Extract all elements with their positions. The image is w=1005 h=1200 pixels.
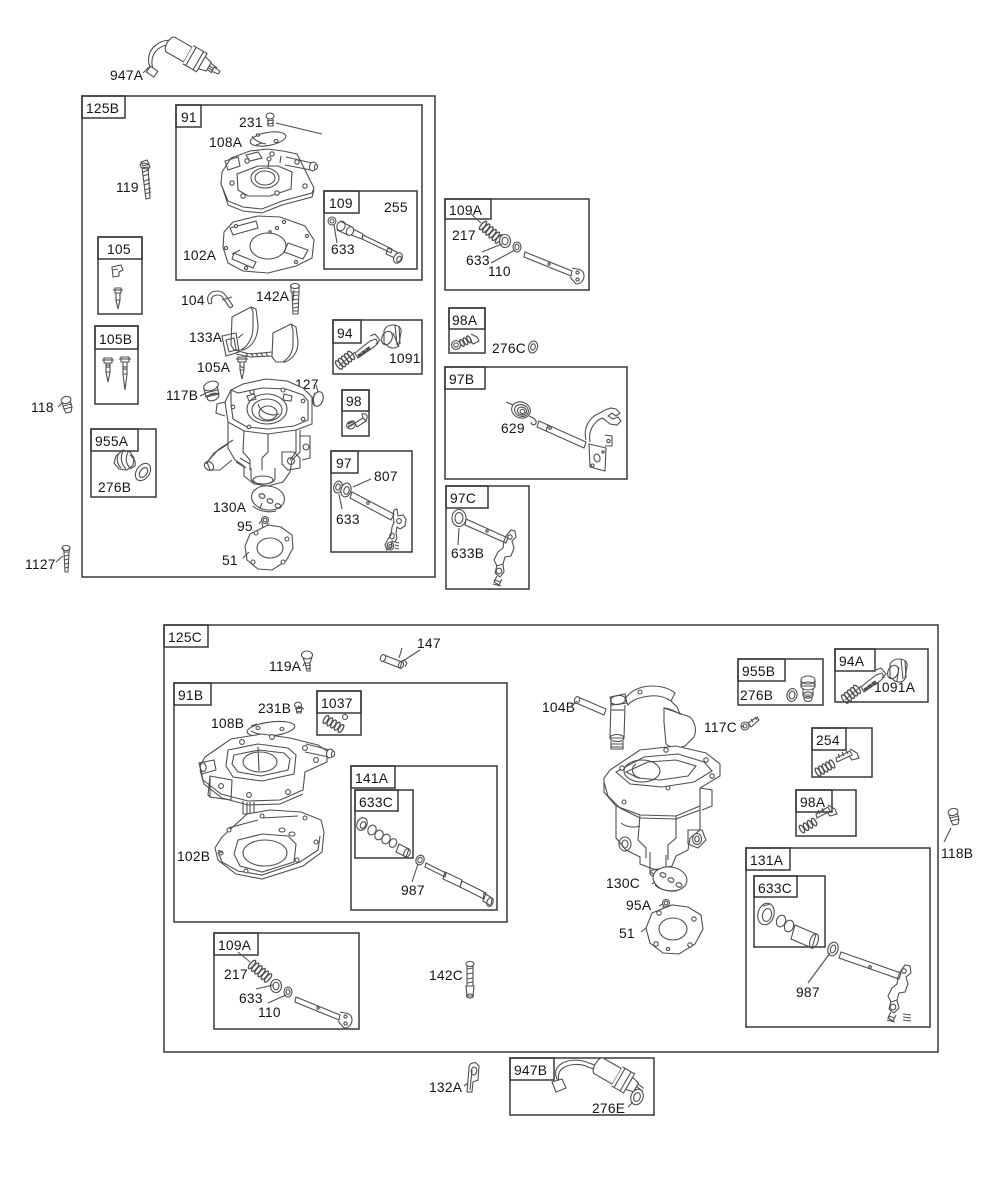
svg-text:109: 109: [329, 196, 353, 211]
svg-text:633C: 633C: [359, 795, 393, 810]
svg-text:94: 94: [337, 326, 353, 341]
svg-text:108A: 108A: [209, 135, 243, 150]
svg-text:109A: 109A: [218, 938, 252, 953]
svg-text:633: 633: [239, 991, 263, 1006]
svg-text:118B: 118B: [941, 846, 973, 861]
svg-text:97B: 97B: [449, 372, 474, 387]
svg-text:633: 633: [466, 253, 490, 268]
svg-text:133A: 133A: [189, 330, 223, 345]
svg-text:147: 147: [417, 636, 441, 651]
svg-text:231: 231: [239, 115, 263, 130]
svg-text:955A: 955A: [95, 434, 129, 449]
svg-text:98: 98: [346, 394, 362, 409]
svg-text:217: 217: [224, 967, 248, 982]
svg-text:633B: 633B: [451, 546, 484, 561]
svg-text:947B: 947B: [514, 1063, 547, 1078]
svg-text:987: 987: [401, 883, 425, 898]
svg-text:231B: 231B: [258, 701, 291, 716]
svg-text:629: 629: [501, 421, 525, 436]
svg-text:105A: 105A: [197, 360, 231, 375]
svg-text:97: 97: [336, 456, 352, 471]
svg-text:97C: 97C: [450, 491, 476, 506]
svg-text:1091: 1091: [389, 351, 421, 366]
svg-text:95A: 95A: [626, 898, 652, 913]
svg-text:51: 51: [222, 553, 238, 568]
svg-text:109A: 109A: [449, 203, 483, 218]
svg-text:633: 633: [336, 512, 360, 527]
svg-text:131A: 131A: [750, 853, 784, 868]
svg-text:102A: 102A: [183, 248, 217, 263]
svg-text:125B: 125B: [86, 101, 119, 116]
svg-text:1091A: 1091A: [874, 680, 916, 695]
svg-text:110: 110: [258, 1005, 281, 1020]
svg-text:95: 95: [237, 519, 253, 534]
svg-text:217: 217: [452, 228, 476, 243]
svg-text:118: 118: [31, 400, 54, 415]
svg-text:119: 119: [116, 180, 139, 195]
svg-text:276E: 276E: [592, 1101, 625, 1116]
svg-text:117C: 117C: [704, 720, 737, 735]
svg-text:125C: 125C: [168, 630, 202, 645]
svg-text:141A: 141A: [355, 771, 389, 786]
svg-text:119A: 119A: [269, 659, 302, 674]
svg-text:105: 105: [107, 242, 131, 257]
svg-text:276B: 276B: [740, 688, 773, 703]
svg-text:91B: 91B: [178, 688, 203, 703]
svg-text:130C: 130C: [606, 876, 640, 891]
svg-text:104B: 104B: [542, 700, 575, 715]
svg-text:807: 807: [374, 469, 398, 484]
svg-text:633C: 633C: [758, 881, 792, 896]
svg-text:108B: 108B: [211, 716, 244, 731]
svg-text:132A: 132A: [429, 1080, 463, 1095]
svg-text:142A: 142A: [256, 289, 290, 304]
svg-text:130A: 130A: [213, 500, 247, 515]
svg-text:104: 104: [181, 293, 205, 308]
svg-text:255: 255: [384, 200, 408, 215]
svg-text:98A: 98A: [452, 313, 478, 328]
svg-text:98A: 98A: [800, 795, 826, 810]
svg-text:254: 254: [816, 733, 840, 748]
svg-text:633: 633: [331, 242, 355, 257]
svg-text:1037: 1037: [321, 696, 353, 711]
svg-text:947A: 947A: [110, 68, 144, 83]
svg-text:110: 110: [488, 264, 511, 279]
svg-text:1127: 1127: [25, 557, 56, 572]
svg-text:276B: 276B: [98, 480, 131, 495]
svg-text:955B: 955B: [742, 664, 775, 679]
svg-text:51: 51: [619, 926, 635, 941]
svg-text:105B: 105B: [99, 332, 132, 347]
svg-text:94A: 94A: [839, 654, 865, 669]
svg-text:142C: 142C: [429, 968, 463, 983]
svg-text:102B: 102B: [177, 849, 210, 864]
svg-text:987: 987: [796, 985, 820, 1000]
svg-text:91: 91: [181, 110, 197, 125]
svg-text:276C: 276C: [492, 341, 526, 356]
svg-text:117B: 117B: [166, 388, 198, 403]
